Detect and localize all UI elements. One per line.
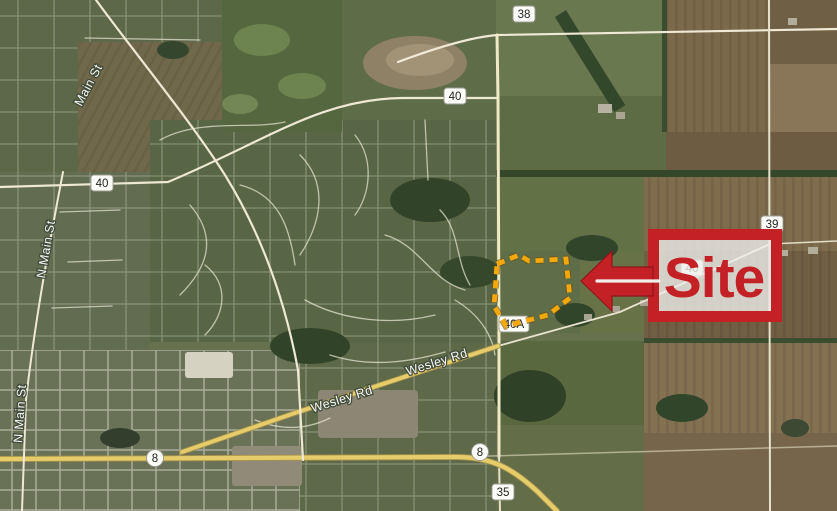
site-callout: Site xyxy=(654,235,777,317)
satellite-map-canvas: Main St N Main St N Main St Wesley Rd We… xyxy=(0,0,837,511)
aerial-map: Main St N Main St N Main St Wesley Rd We… xyxy=(0,0,837,511)
route-shield-8-west: 8 xyxy=(147,450,164,467)
svg-text:40: 40 xyxy=(449,91,462,103)
svg-text:40: 40 xyxy=(96,178,109,190)
svg-text:8: 8 xyxy=(152,453,158,465)
route-shield-35: 35 xyxy=(492,484,514,500)
route-shield-8-east: 8 xyxy=(472,444,489,461)
svg-text:38: 38 xyxy=(518,9,531,21)
svg-text:8: 8 xyxy=(477,447,483,459)
svg-text:35: 35 xyxy=(497,487,510,499)
route-shield-40-north: 40 xyxy=(444,88,466,104)
site-callout-label: Site xyxy=(664,246,765,310)
route-shield-40-west: 40 xyxy=(91,175,113,191)
route-shield-38: 38 xyxy=(513,6,535,22)
